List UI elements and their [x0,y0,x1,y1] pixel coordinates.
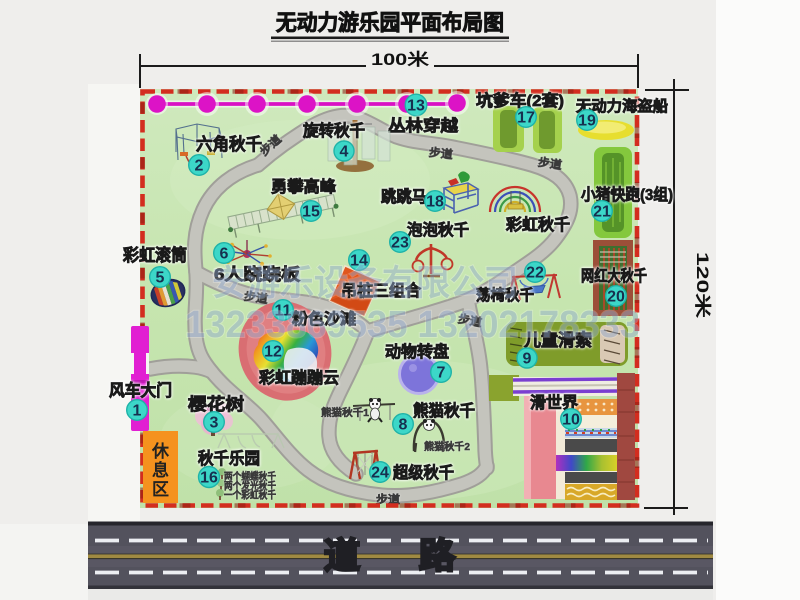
svg-text:15: 15 [302,204,320,221]
svg-text:120米: 120米 [693,252,713,319]
svg-text:超级秋千: 超级秋千 [392,463,454,482]
svg-text:16: 16 [200,470,218,487]
svg-text:熊猫秋千: 熊猫秋千 [413,401,475,420]
svg-text:18: 18 [426,194,444,211]
svg-text:24: 24 [371,465,389,482]
svg-text:22: 22 [526,265,544,282]
svg-text:跳跳马: 跳跳马 [381,187,427,206]
svg-text:1: 1 [133,403,142,420]
svg-text:6: 6 [220,246,229,263]
svg-text:5: 5 [156,270,165,287]
svg-text:彩虹滚筒: 彩虹滚筒 [122,245,187,265]
svg-text:21: 21 [593,204,611,221]
svg-text:20: 20 [607,289,625,306]
svg-text:4: 4 [340,144,349,161]
svg-text:网红大秋千: 网红大秋千 [581,266,647,285]
svg-text:熊猫秋千1: 熊猫秋千1 [321,406,369,419]
svg-text:10: 10 [562,412,580,429]
svg-text:息: 息 [152,460,169,480]
svg-text:区: 区 [152,480,169,499]
svg-text:六角秋千: 六角秋千 [196,134,262,154]
svg-text:23: 23 [391,235,409,252]
svg-text:小猪快跑(3组): 小猪快跑(3组) [581,185,673,204]
svg-text:勇攀高峰: 勇攀高峰 [271,177,337,196]
svg-text:丛林穿越: 丛林穿越 [388,116,459,135]
svg-text:3: 3 [210,415,219,432]
svg-text:7: 7 [437,365,446,382]
svg-text:道: 道 [324,537,360,576]
svg-text:坑爹车(2套): 坑爹车(2套) [476,91,564,110]
svg-text:泡泡秋千: 泡泡秋千 [407,220,469,239]
svg-text:樱花树: 樱花树 [188,394,244,414]
svg-text:12: 12 [264,344,282,361]
svg-text:彩虹蹦蹦云: 彩虹蹦蹦云 [258,368,339,387]
svg-text:安游乐设备有限公司: 安游乐设备有限公司 [212,264,518,303]
svg-text:19: 19 [578,113,596,130]
svg-text:路: 路 [419,537,456,576]
svg-text:无动力游乐园平面布局图: 无动力游乐园平面布局图 [276,10,504,35]
svg-text:100米: 100米 [371,49,430,69]
svg-text:旋转秋千: 旋转秋千 [302,121,365,140]
svg-text:9: 9 [523,351,532,368]
svg-text:一个彩虹秋千: 一个彩虹秋千 [224,489,276,502]
svg-text:彩虹秋千: 彩虹秋千 [505,215,570,234]
svg-text:13: 13 [407,98,425,115]
svg-text:13233869535 13202178333: 13233869535 13202178333 [185,304,640,346]
svg-text:熊猫秋千2: 熊猫秋千2 [424,440,470,453]
svg-text:2: 2 [195,158,204,175]
svg-text:风车大门: 风车大门 [109,380,172,400]
svg-text:8: 8 [399,417,408,434]
svg-text:17: 17 [517,110,535,127]
svg-text:休: 休 [151,441,170,461]
svg-text:秋千乐园: 秋千乐园 [198,448,260,468]
